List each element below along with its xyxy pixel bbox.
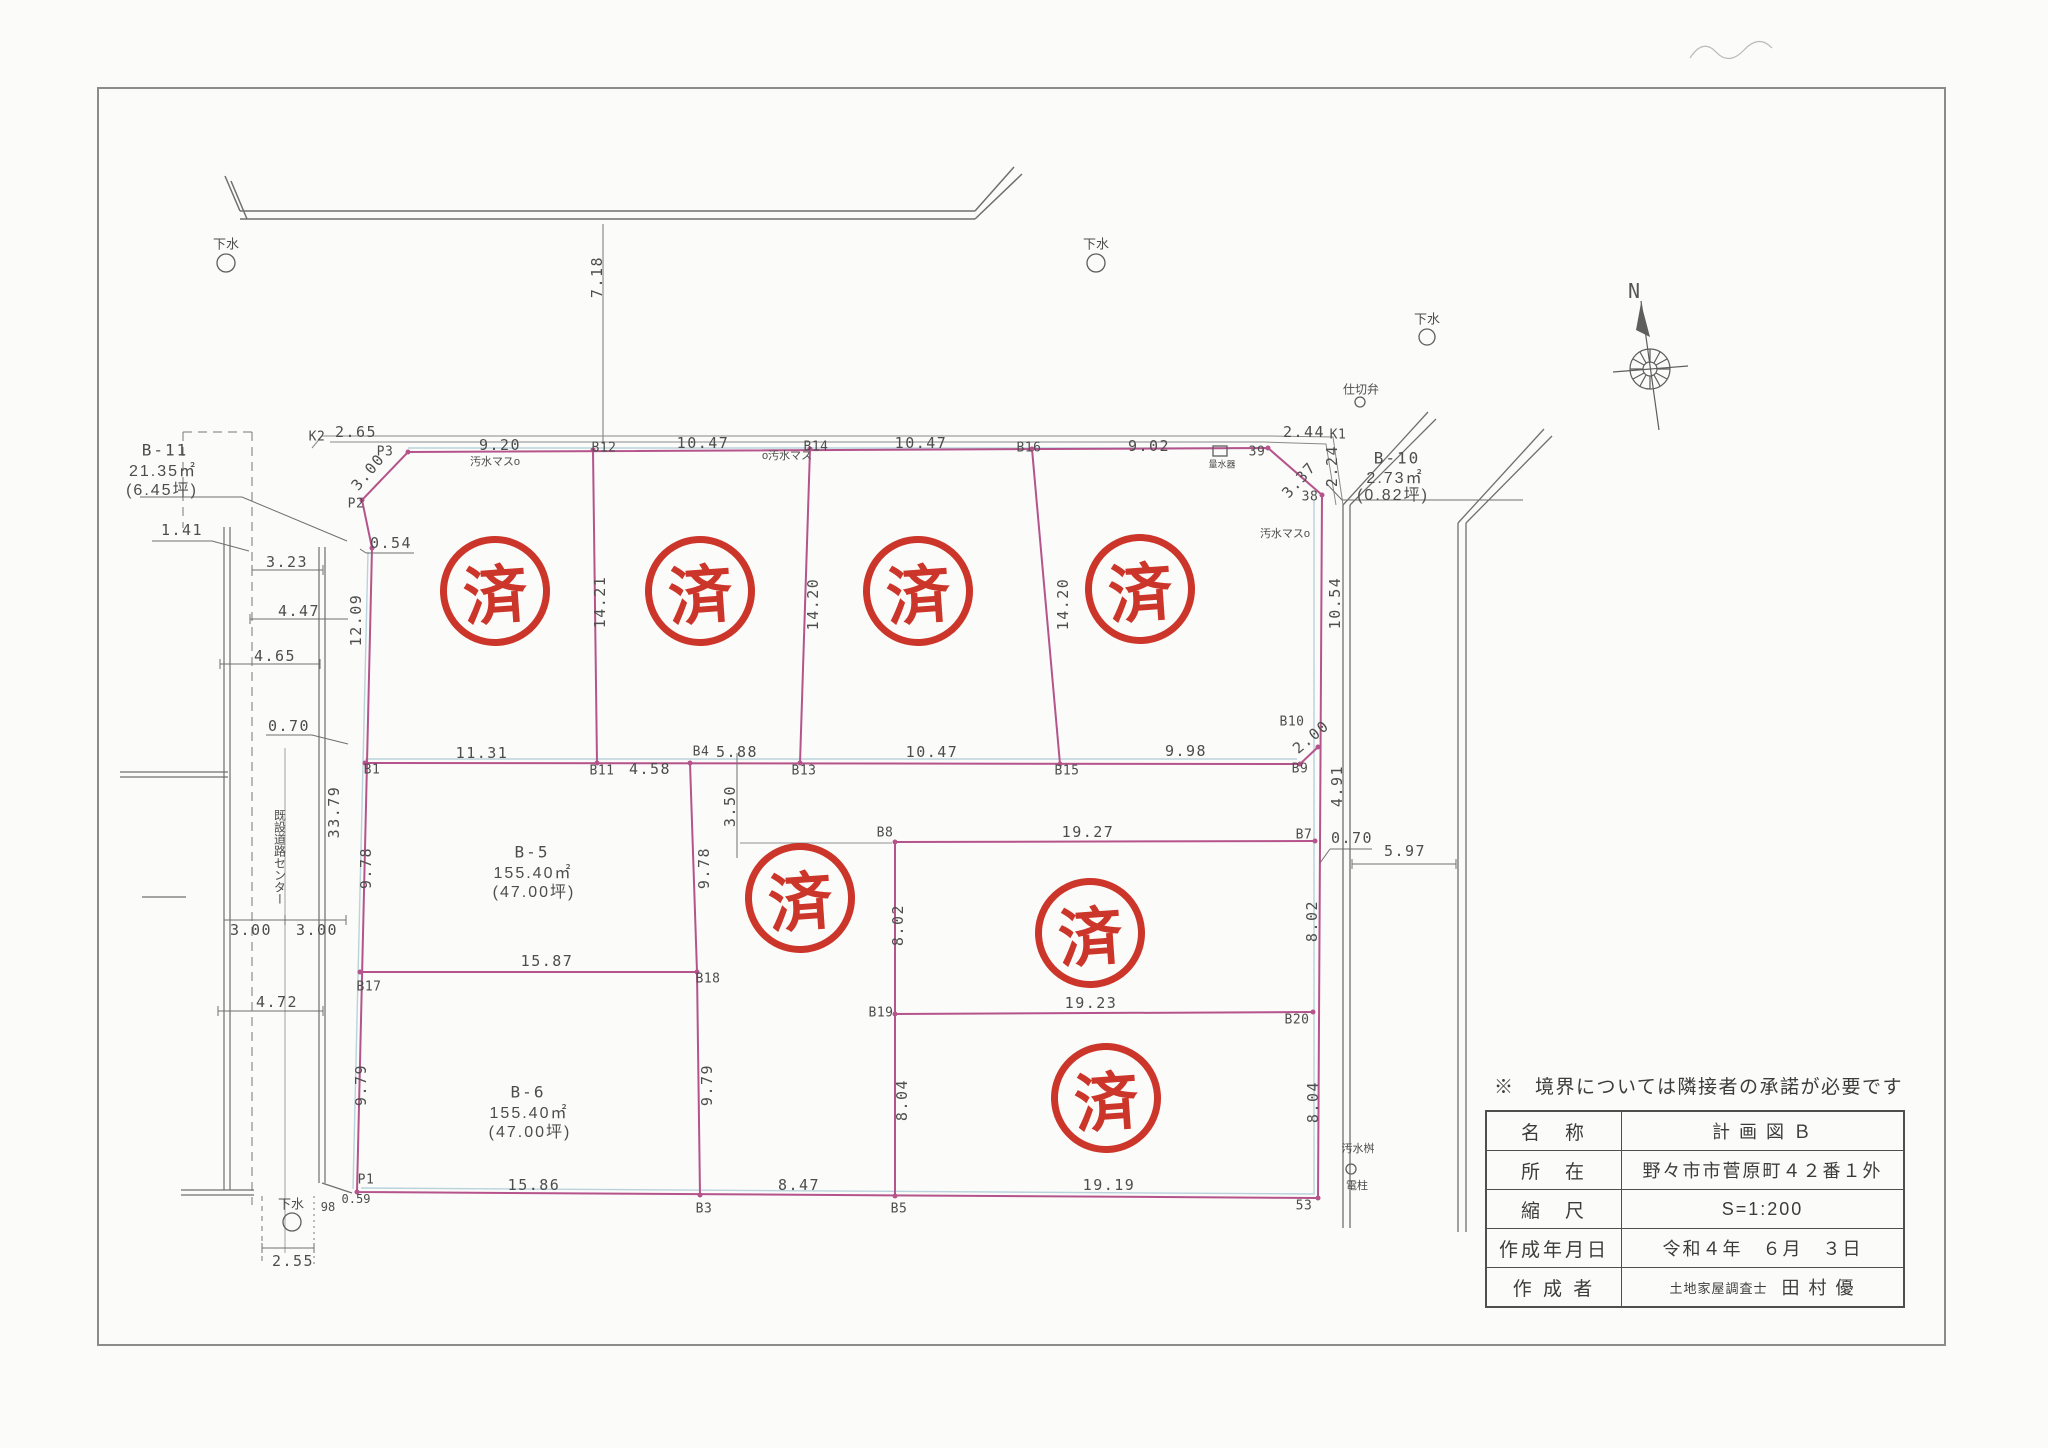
point-k2: K2 <box>309 430 326 445</box>
dim-left-6: 33.79 <box>325 786 343 839</box>
point-53: 53 <box>1296 1199 1313 1214</box>
dim-road-offset: 7.18 <box>588 256 606 298</box>
dim-depth-1: 12.09 <box>347 594 365 647</box>
point-k1: K1 <box>1330 428 1347 443</box>
dim-left-8: 2.55 <box>272 1252 314 1270</box>
dim-east-d4: 8.04 <box>1304 1081 1322 1123</box>
dim-mid-1: 11.31 <box>456 744 509 762</box>
point-b18: B18 <box>696 972 721 987</box>
row-value: 土地家屋調査士 田 村 優 <box>1622 1268 1903 1306</box>
point-b9: B9 <box>1292 762 1309 777</box>
dim-notch: 3.50 <box>721 785 739 827</box>
point-p1: P1 <box>358 1173 375 1188</box>
dim-mid-4: 10.47 <box>906 743 959 761</box>
dim-mid-5: 9.98 <box>1165 742 1207 760</box>
dim-east-bottom: 19.19 <box>1083 1176 1136 1194</box>
point-b16: B16 <box>1017 441 1042 456</box>
north-label: N <box>1628 279 1640 303</box>
gate-valve-label: 仕切弁 <box>1343 381 1379 398</box>
point-b5: B5 <box>891 1202 908 1217</box>
dim-b5-width: 15.87 <box>521 952 574 970</box>
row-value: S=1:200 <box>1622 1190 1903 1228</box>
row-label: 名 称 <box>1487 1112 1622 1150</box>
road-centerline-label: 既設道路センター <box>272 809 289 905</box>
dim-road-half-1: 3.00 <box>230 921 272 939</box>
sewer-label: 下水 <box>213 234 239 253</box>
title-block: 名 称 計 画 図 Ｂ 所 在 野々市市菅原町４２番１外 縮 尺 S=1:200… <box>1485 1110 1905 1308</box>
dim-depth-3: 14.20 <box>804 578 822 631</box>
point-p2: P2 <box>348 497 365 512</box>
point-39: 39 <box>1249 445 1266 460</box>
dim-mid-3: 5.88 <box>716 743 758 761</box>
title-block-row: 所 在 野々市市菅原町４２番１外 <box>1487 1150 1903 1189</box>
dim-p2-kink: 0.54 <box>370 534 412 552</box>
dim-east-d1: 8.02 <box>889 904 907 946</box>
dim-k1-a: 2.44 <box>1283 423 1325 441</box>
dim-road-half-2: 3.00 <box>296 921 338 939</box>
dim-top-1: 9.20 <box>479 436 521 454</box>
dim-top-3: 10.47 <box>895 434 948 452</box>
row-value: 野々市市菅原町４２番１外 <box>1622 1151 1903 1189</box>
dim-k2-p3: 2.65 <box>335 423 377 441</box>
dim-left-7: 4.72 <box>256 993 298 1011</box>
dim-road-width: 5.97 <box>1384 842 1426 860</box>
point-b4: B4 <box>693 745 710 760</box>
dim-b6-depth-l: 9.79 <box>352 1064 370 1106</box>
point-b12: B12 <box>592 441 617 456</box>
dim-b6-width: 15.86 <box>508 1176 561 1194</box>
dim-left-2: 3.23 <box>266 553 308 571</box>
point-98: 98 <box>321 1200 335 1214</box>
dim-b6-depth-r: 9.79 <box>698 1064 716 1106</box>
title-block-row: 縮 尺 S=1:200 <box>1487 1189 1903 1228</box>
row-label: 作 成 者 <box>1487 1268 1622 1306</box>
water-meter-label: 量水器 <box>1208 458 1235 471</box>
title-block-row: 名 称 計 画 図 Ｂ <box>1487 1112 1903 1150</box>
dim-depth-4: 14.20 <box>1054 578 1072 631</box>
dim-left-4: 4.65 <box>254 647 296 665</box>
point-b11: B11 <box>590 764 615 779</box>
dim-east-d2: 8.02 <box>1303 900 1321 942</box>
sewer-label: 下水 <box>1083 234 1109 253</box>
sewer-label: 下水 <box>278 1194 304 1213</box>
boundary-note: ※ 境界については隣接者の承諾が必要です <box>1494 1072 1903 1099</box>
point-b17: B17 <box>357 980 382 995</box>
parcel-b6-tsubo: (47.00坪) <box>489 1118 572 1142</box>
dim-east-mid: 19.23 <box>1065 994 1118 1012</box>
row-value: 令和４年 ６月 ３日 <box>1622 1229 1903 1267</box>
parcel-b11-tsubo: (6.45坪) <box>126 476 198 500</box>
dim-b5-depth-l: 9.78 <box>357 847 375 889</box>
row-label: 縮 尺 <box>1487 1190 1622 1228</box>
surveyor-title: 土地家屋調査士 <box>1669 1278 1767 1297</box>
point-38: 38 <box>1302 490 1319 505</box>
point-b10: B10 <box>1280 715 1305 730</box>
row-label: 所 在 <box>1487 1151 1622 1189</box>
dim-left-1: 1.41 <box>161 521 203 539</box>
dim-top-2: 10.47 <box>677 434 730 452</box>
point-b14: B14 <box>804 440 829 455</box>
parcel-b5-tsubo: (47.00坪) <box>493 878 576 902</box>
point-b20: B20 <box>1285 1013 1310 1028</box>
dim-b10-b7: 4.91 <box>1328 765 1346 807</box>
dim-gap: 0.70 <box>1331 829 1373 847</box>
dim-p1-jog: 0.59 <box>342 1192 371 1206</box>
sewer-label: 下水 <box>1414 309 1440 328</box>
title-block-row: 作成年月日 令和４年 ６月 ３日 <box>1487 1228 1903 1267</box>
sewage-basin-label: 汚水マスo <box>470 453 520 469</box>
point-b13: B13 <box>792 764 817 779</box>
dim-center-width: 8.47 <box>778 1176 820 1194</box>
dim-east-d3: 8.04 <box>893 1079 911 1121</box>
dim-k1-b: 2.24 <box>1323 445 1341 487</box>
title-block-row: 作 成 者 土地家屋調査士 田 村 優 <box>1487 1267 1903 1306</box>
parcel-b10-tsubo: (0.82坪) <box>1357 481 1429 505</box>
point-b19: B19 <box>869 1006 894 1021</box>
sewage-basin-label: 汚水桝 <box>1342 1140 1375 1156</box>
point-b8: B8 <box>877 826 894 841</box>
sewage-basin-label: 汚水マスo <box>1260 525 1310 541</box>
surveyor-name: 田 村 優 <box>1782 1274 1856 1300</box>
dim-top-4: 9.02 <box>1128 437 1170 455</box>
row-value: 計 画 図 Ｂ <box>1622 1112 1903 1150</box>
point-b7: B7 <box>1296 828 1313 843</box>
dim-depth-2: 14.21 <box>591 576 609 629</box>
survey-plan-sheet: 済 済 済 済 済 済 済 下水 下水 下水 仕切弁 下水 汚水マスo o汚水マ… <box>0 0 2048 1448</box>
row-label: 作成年月日 <box>1487 1229 1622 1267</box>
dim-left-5: 0.70 <box>268 717 310 735</box>
point-b3: B3 <box>696 1202 713 1217</box>
dim-depth-5: 10.54 <box>1326 577 1344 630</box>
point-b15: B15 <box>1055 764 1080 779</box>
dim-mid-2: 4.58 <box>629 760 671 778</box>
dim-b5-depth-r: 9.78 <box>695 847 713 889</box>
dim-east-top: 19.27 <box>1062 823 1115 841</box>
dim-left-3: 4.47 <box>278 602 320 620</box>
utility-pole-label: 電柱 <box>1346 1177 1368 1193</box>
point-b1: B1 <box>364 763 381 778</box>
